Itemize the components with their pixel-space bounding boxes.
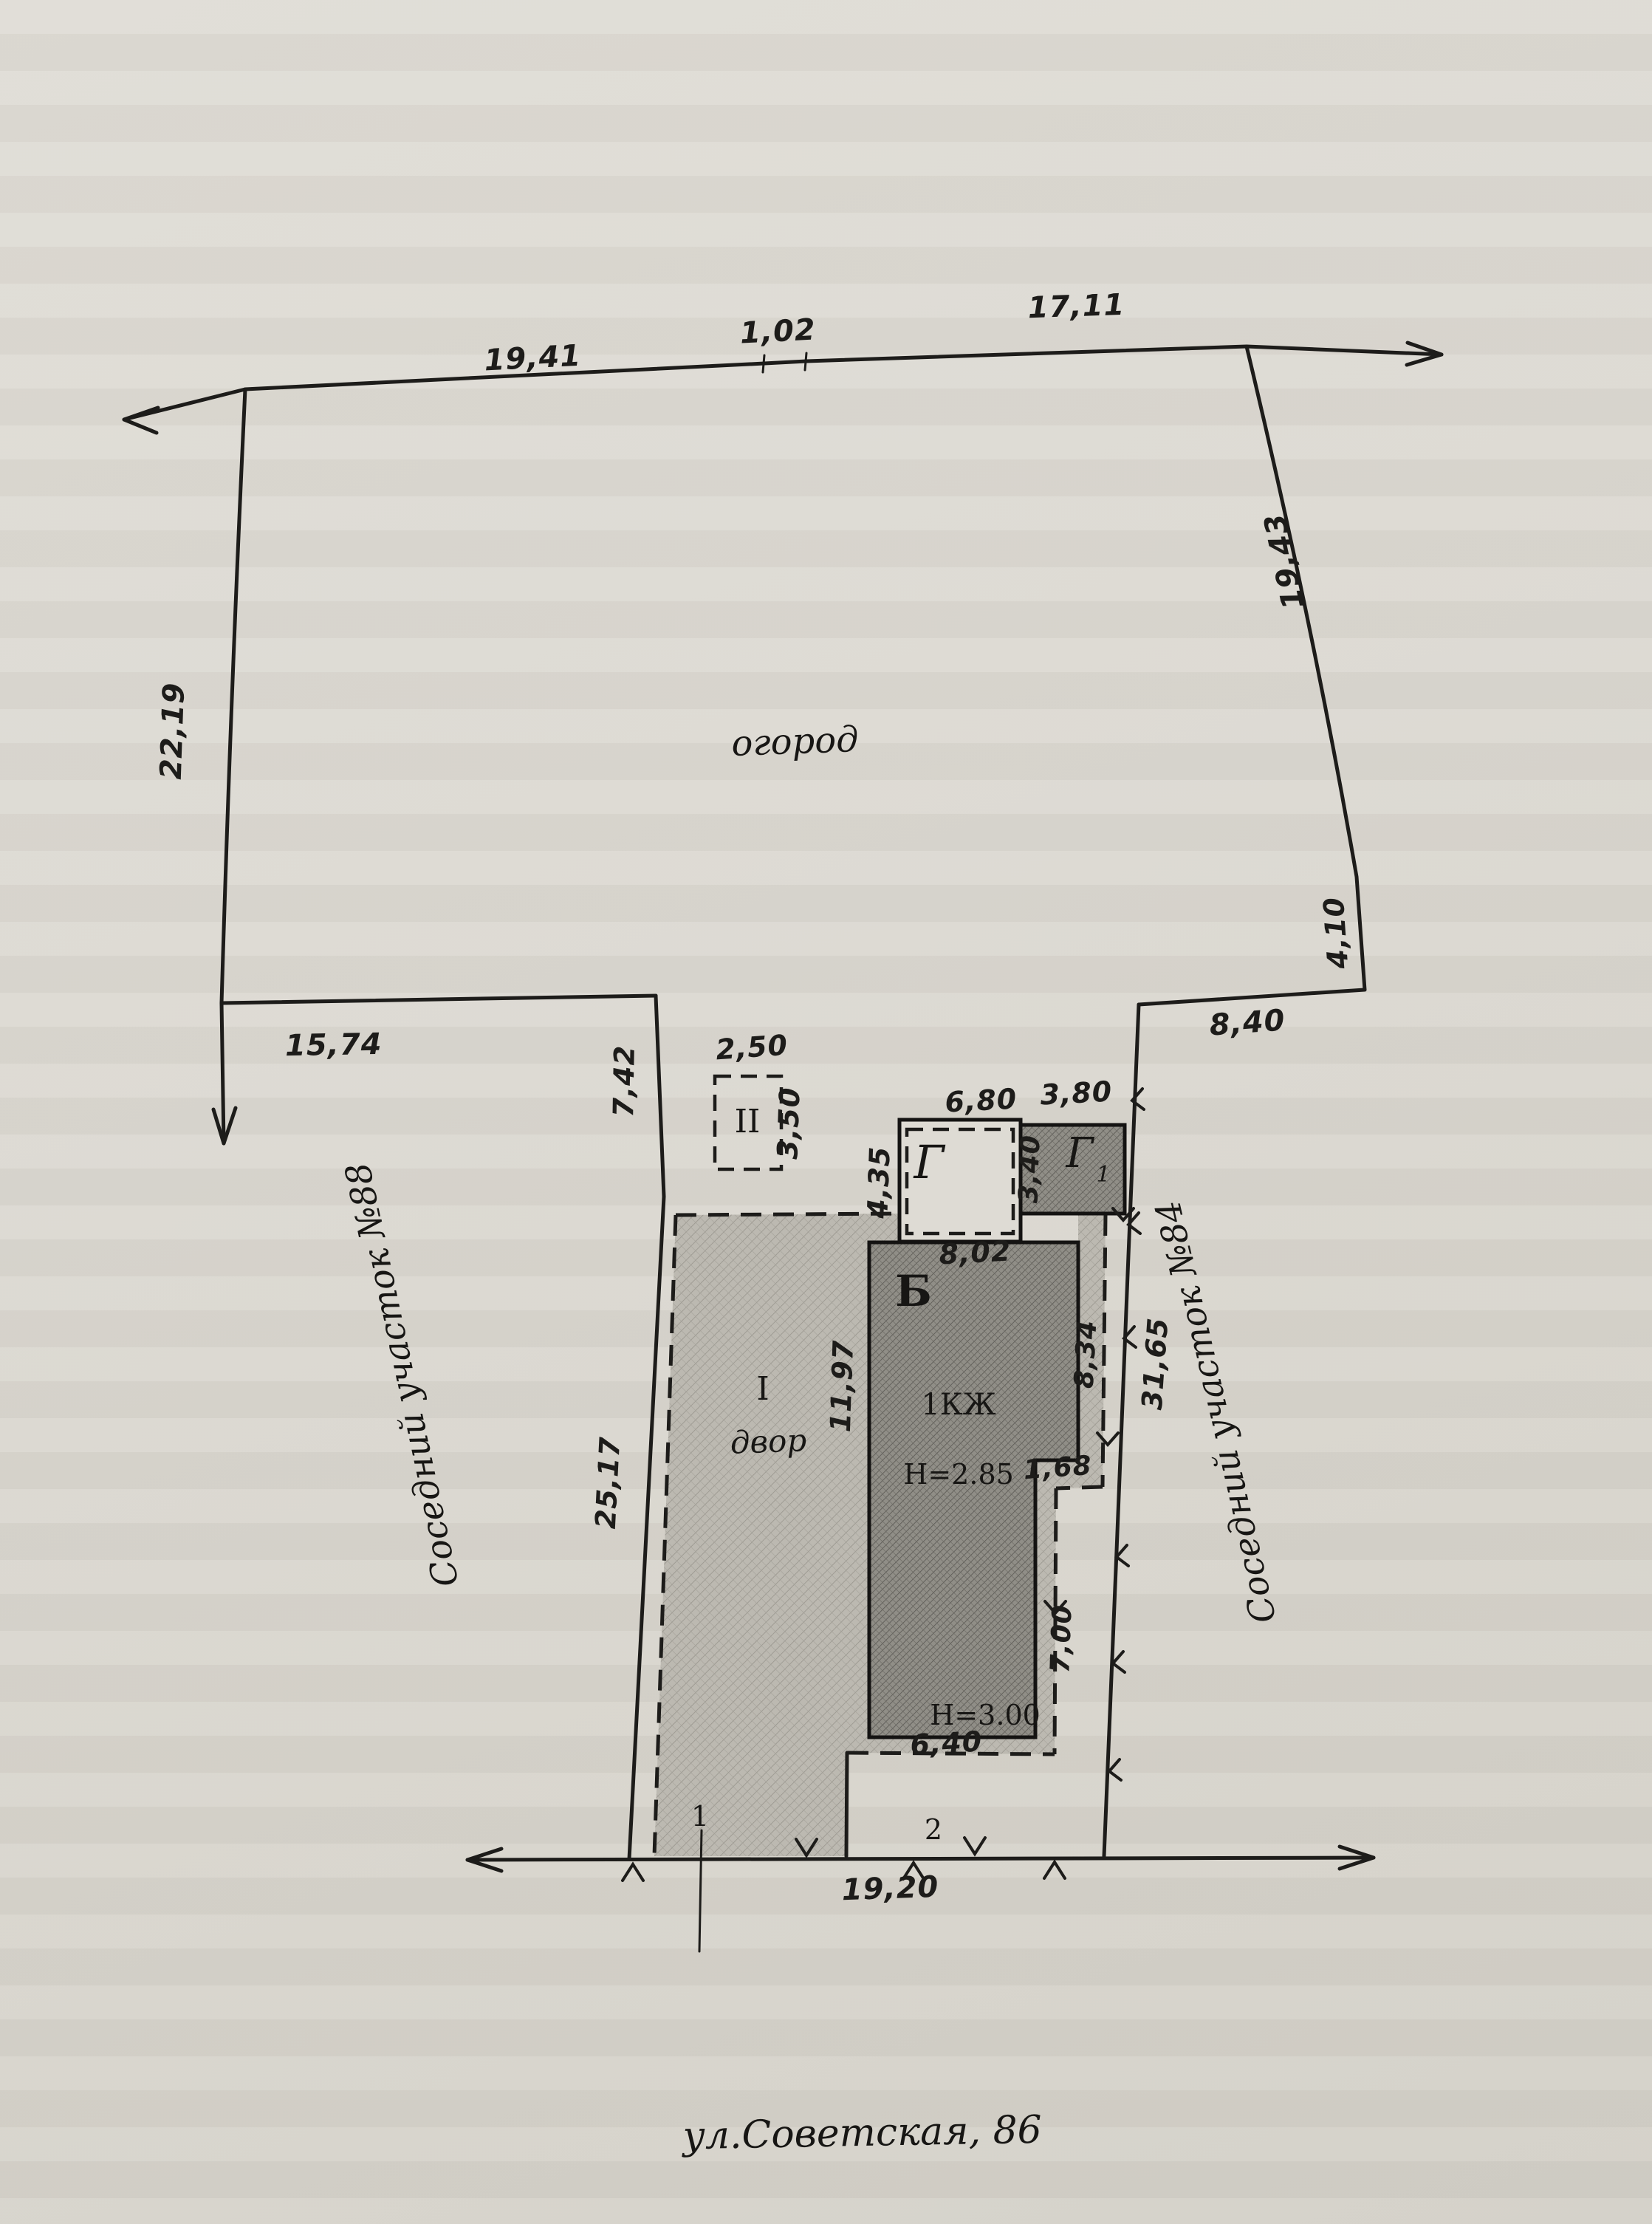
dim-left-inner: 7,42 [607, 1045, 641, 1118]
dim-g1-w: 3,80 [1039, 1075, 1113, 1111]
dim-left-upper: 22,19 [154, 682, 192, 780]
street-tick-up-3 [1044, 1862, 1065, 1878]
neighbor-right-label: Соседний участок №84 [1148, 1197, 1284, 1627]
building-b-label: Б [895, 1266, 932, 1316]
dim-g1-h: 3,40 [1013, 1134, 1046, 1203]
right-boundary-line [1247, 346, 1365, 990]
dim-b-w: 8,02 [938, 1234, 1012, 1270]
street-tick-down-2 [964, 1838, 985, 1854]
dim-top-3: 17,11 [1027, 288, 1125, 326]
dim-right-jog: 4,10 [1317, 896, 1355, 971]
dim-right-upper: 19,43 [1258, 510, 1311, 612]
dim-left-mid: 15,74 [285, 1027, 383, 1063]
building-g1-index: 1 [1096, 1162, 1110, 1188]
dim-right-lower: 31,65 [1136, 1316, 1175, 1411]
dim-b-strip: 7,00 [1045, 1604, 1077, 1673]
dim-left-lower: 25,17 [589, 1436, 626, 1530]
garden-south-line [222, 996, 656, 1003]
site-plan-drawing: 19,41 1,02 17,11 22,19 15,74 7,42 25,17 … [0, 0, 1652, 2224]
neighbor-left-label: Соседний участок №88 [337, 1159, 467, 1590]
dim-g-w: 6,80 [944, 1082, 1018, 1118]
yard-roman-label: I [756, 1370, 769, 1408]
building-g-label: Г [913, 1135, 945, 1189]
dim-street-front: 19,20 [841, 1870, 939, 1908]
dim-top-1: 19,41 [483, 339, 582, 378]
dim-b-h: 11,97 [824, 1339, 860, 1433]
dim-top-2: 1,02 [739, 312, 817, 350]
building-b-height-upper: Н=2.85 [903, 1458, 1014, 1491]
dim-shed2-w: 2,50 [715, 1029, 789, 1067]
building-b-type-label: 1КЖ [921, 1388, 995, 1422]
dim-right-top: 8,40 [1208, 1004, 1286, 1043]
street-line [467, 1858, 1374, 1860]
dim-g-h: 4,35 [861, 1146, 896, 1219]
yard-lower-right-edge [846, 1753, 847, 1856]
site-plan-page: 19,41 1,02 17,11 22,19 15,74 7,42 25,17 … [0, 0, 1652, 2224]
garden-label: огород [730, 719, 859, 764]
building-b-height-lower: Н=3.00 [930, 1699, 1041, 1731]
boundary-tick-6 [1109, 1759, 1121, 1780]
dim-b-step: 1,68 [1022, 1451, 1092, 1485]
street-address-label: ул.Советская, 86 [681, 2108, 1042, 2159]
dim-shed2-h: 3,50 [771, 1087, 806, 1160]
point-2-label: 2 [925, 1813, 942, 1846]
structure-ii-label: II [735, 1103, 761, 1140]
right-top-return-line [1139, 990, 1365, 1005]
street-tick-up-1 [623, 1864, 643, 1881]
top-boundary-tick-b [805, 353, 806, 370]
building-g1-label: Г [1065, 1129, 1094, 1177]
top-boundary-tick-a [763, 355, 764, 372]
top-boundary-line [124, 346, 1442, 420]
dim-b-right: 8,34 [1069, 1319, 1103, 1389]
boundary-tick-5 [1113, 1652, 1125, 1672]
left-boundary-line [222, 389, 245, 1143]
point-1-label: 1 [691, 1800, 709, 1833]
yard-label: двор [730, 1422, 807, 1461]
